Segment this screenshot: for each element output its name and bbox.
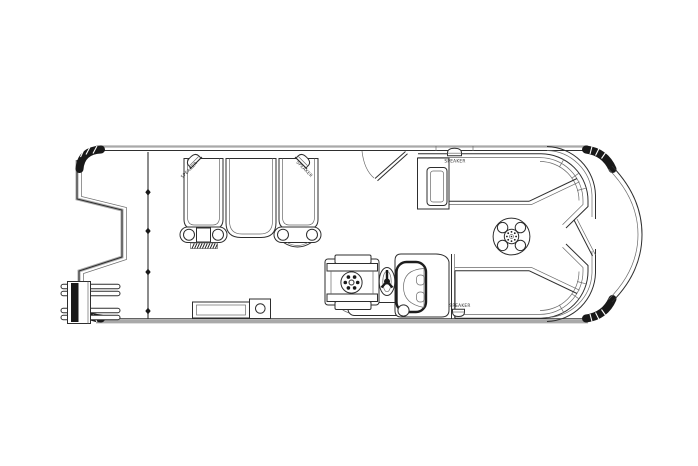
- cupholder: [184, 229, 195, 240]
- boarding-ladder: [191, 243, 218, 249]
- hub-center-dot: [511, 236, 513, 238]
- captain-chair: [325, 255, 379, 310]
- fence-lower-outer: [547, 249, 596, 322]
- corner-cap-bottom-right: [586, 299, 613, 322]
- recliner-backrest: [418, 158, 450, 209]
- armrest-tray: [197, 228, 211, 242]
- cupholder: [213, 229, 224, 240]
- chair-backrest-bar: [335, 255, 371, 264]
- pontoon-floorplan-drawing: SPEAKER SPEAKER: [0, 0, 698, 466]
- chair-top-flange: [327, 264, 378, 272]
- corner-wedge-inner: [532, 182, 580, 205]
- bow-hull-curve: [609, 166, 643, 302]
- bow-gate-door: [574, 220, 593, 256]
- side-gate: [362, 151, 408, 181]
- gate-door-inner: [378, 154, 408, 181]
- corner-cap-top-left: [80, 146, 102, 169]
- hinge-marker: [145, 308, 150, 315]
- gate-swing-arc: [362, 151, 374, 178]
- motor-bracket: [68, 282, 91, 324]
- hinge-marker: [145, 189, 150, 196]
- wheel-hub: [384, 279, 390, 285]
- ladder-rungs: [192, 243, 217, 248]
- bow-gate-door-inner: [577, 219, 596, 255]
- motor-mount: [61, 282, 120, 324]
- stern-gate-line: [145, 152, 150, 319]
- bench-corner-arc: [540, 272, 579, 311]
- locker-body: [193, 302, 250, 318]
- bow-bench-port: [418, 154, 589, 228]
- hinge-marker: [145, 228, 150, 235]
- storage-locker: [193, 299, 271, 319]
- bench-corner-arc: [540, 162, 579, 201]
- steering-wheel: [379, 268, 395, 296]
- chair-front-bar: [335, 302, 371, 310]
- fence-lower-inner: [547, 251, 592, 318]
- speaker-icon: [448, 148, 462, 156]
- corner-wedge: [529, 271, 577, 294]
- speaker-label: SPEAKER: [449, 303, 470, 309]
- corner-wedge-inner: [532, 267, 580, 290]
- boat-floorplan-canvas: SPEAKER SPEAKER: [0, 0, 698, 466]
- bow-curve-inner: [609, 169, 639, 300]
- helm-console: [395, 254, 455, 319]
- stern-lounges: [180, 159, 321, 249]
- gate-door: [375, 152, 406, 179]
- corner-cap-top-right: [586, 147, 613, 170]
- bow-bench-starboard: [455, 244, 588, 318]
- bench-back-outer: [455, 244, 588, 318]
- fence-upper-outer: [547, 147, 596, 220]
- bow-curve-outer: [612, 166, 642, 302]
- ski-tow-base: [398, 305, 409, 316]
- helm-station: [325, 254, 455, 319]
- bow-table: [493, 218, 530, 255]
- speaker-icon: [453, 309, 465, 316]
- chair-bottom-flange: [327, 294, 378, 302]
- cupholder: [255, 304, 265, 314]
- hinge-marker: [145, 269, 150, 276]
- cupholder: [307, 229, 318, 240]
- motor-transom-bar: [71, 283, 79, 322]
- speaker-label: SPEAKER: [444, 158, 465, 164]
- bench-back-inner: [455, 247, 583, 314]
- corner-wedge: [529, 179, 577, 202]
- lounge-starboard-cushion: [279, 159, 318, 229]
- cupholder: [278, 229, 289, 240]
- lounge-center-backrest: [226, 159, 276, 238]
